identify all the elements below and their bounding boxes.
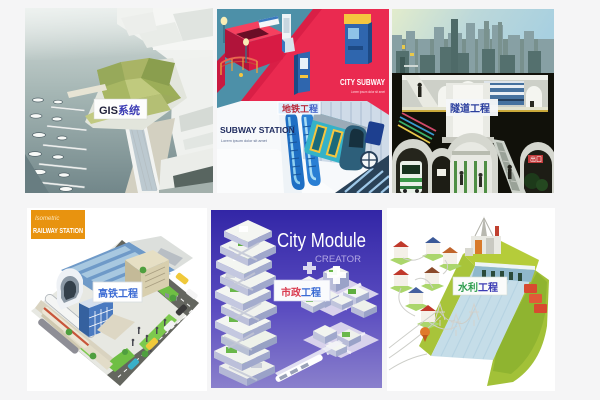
svg-text:CREATOR: CREATOR [315,254,361,265]
svg-text:市政工程: 市政工程 [281,286,321,299]
svg-text:City Module: City Module [277,230,366,252]
svg-text:出口: 出口 [530,156,542,164]
svg-text:地铁工程: 地铁工程 [282,103,318,114]
svg-text:RAILWAY STATION: RAILWAY STATION [33,226,83,235]
svg-text:GIS系统: GIS系统 [99,103,140,117]
svg-text:隧道工程: 隧道工程 [450,102,490,115]
svg-text:Lorem ipsum dolor sit amet: Lorem ipsum dolor sit amet [351,90,385,94]
svg-text:水利工程: 水利工程 [457,281,498,294]
svg-text:SUBWAY STATION: SUBWAY STATION [220,125,295,135]
svg-text:CITY SUBWAY: CITY SUBWAY [340,78,386,87]
svg-text:Lorem ipsum dolor sit amet: Lorem ipsum dolor sit amet [221,139,268,143]
svg-text:Isometric: Isometric [35,216,59,222]
svg-text:高铁工程: 高铁工程 [98,287,138,300]
